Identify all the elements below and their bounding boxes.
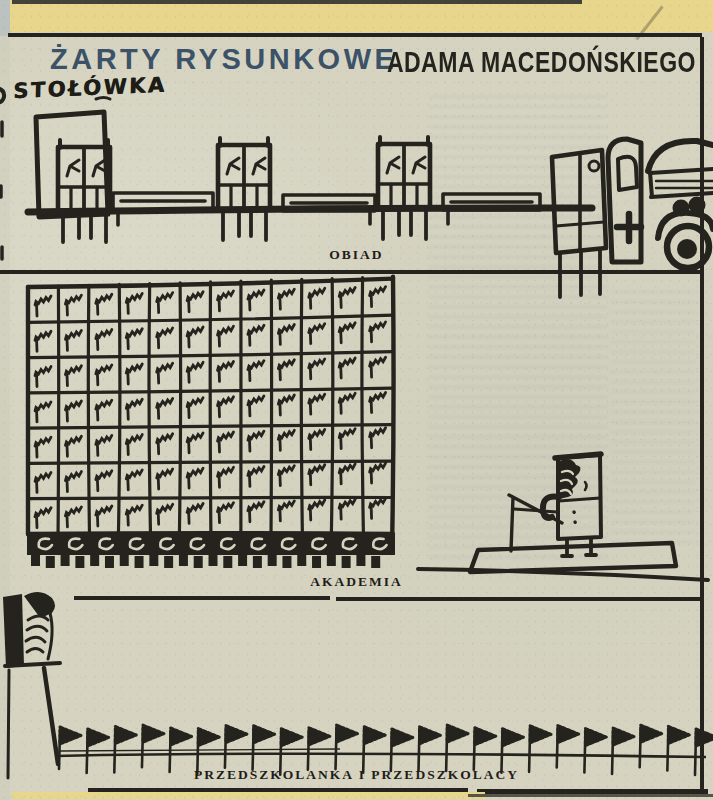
sleeping-face-glyph — [339, 287, 355, 307]
sleeping-face-glyph — [309, 288, 325, 308]
cartoon-akademia-drawing — [0, 0, 713, 800]
page-edge-top-line — [12, 0, 582, 4]
sleeping-face-glyph — [248, 431, 264, 451]
sleeping-face-glyph — [370, 287, 386, 307]
pennant-child-glyph — [337, 725, 358, 742]
sleeping-face-glyph — [278, 289, 294, 309]
sleeping-face-glyph — [126, 293, 142, 313]
sleeping-face-glyph — [248, 361, 264, 381]
page-title: ŻARTY RYSUNKOWE — [50, 43, 397, 76]
pennant-child-glyph — [585, 729, 606, 746]
sleeping-face-glyph — [218, 291, 234, 311]
sleeping-face-glyph — [218, 326, 234, 346]
sleeping-face-glyph — [339, 393, 355, 413]
sleeping-face-glyph — [35, 367, 51, 387]
sleeping-face-glyph — [278, 360, 294, 380]
sleeping-face-glyph — [218, 361, 234, 381]
pennant-child-glyph — [668, 726, 689, 743]
pennant-child-glyph — [475, 728, 496, 745]
sleeping-face-glyph — [278, 395, 294, 415]
sleeping-face-glyph — [126, 364, 142, 384]
paper-grain — [0, 0, 713, 800]
divider-rule-1 — [0, 270, 701, 274]
pennant-child-glyph — [696, 729, 713, 746]
sleeping-face-glyph — [339, 429, 355, 449]
right-frame-rule — [700, 37, 704, 790]
pennant-child-glyph — [392, 729, 413, 746]
sleeping-face-glyph — [278, 324, 294, 344]
sleeping-face-glyph — [96, 365, 112, 385]
sleeping-face-glyph — [339, 358, 355, 378]
scanned-newspaper-page: ŻARTY RYSUNKOWE ADAMA MACEDOŃSKIEGO STOŁ… — [0, 0, 713, 800]
sleeping-face-glyph — [157, 293, 173, 313]
ground-line — [56, 754, 706, 757]
cartoon-przedszkolanka-drawing — [0, 0, 713, 800]
sleeping-face-glyph — [187, 503, 203, 523]
sleeping-face-glyph — [187, 433, 203, 453]
teacher-banner — [3, 592, 60, 778]
pennant-child-glyph — [309, 728, 330, 745]
sleeping-face-glyph — [309, 500, 325, 520]
sleeping-face-glyph — [370, 428, 386, 448]
sleeping-face-glyph — [96, 294, 112, 314]
caption-przedszkolanka: PRZEDSZKOLANKA I PRZEDSZKOLACY — [0, 767, 713, 783]
ink-bleed-through — [428, 95, 608, 565]
sleeping-face-glyph — [370, 357, 386, 377]
sleeping-face-glyph — [187, 362, 203, 382]
sleeping-face-glyph — [187, 292, 203, 312]
sleeping-face-glyph — [126, 329, 142, 349]
sleeping-face-glyph — [35, 472, 51, 492]
pennant-child-glyph — [143, 725, 164, 742]
door-window — [618, 157, 637, 190]
sleeping-face-glyph — [157, 328, 173, 348]
sleeping-face-glyph — [96, 506, 112, 526]
pennant-child-glyph — [502, 729, 523, 746]
sleeping-face-glyph — [157, 469, 173, 489]
sleeping-face-glyph — [218, 503, 234, 523]
pennant-child-glyph — [115, 726, 136, 743]
sleeping-face-glyph — [65, 295, 81, 315]
sleeping-face-glyph — [126, 435, 142, 455]
sleeping-face-glyph — [339, 499, 355, 519]
sleeping-face-glyph — [278, 466, 294, 486]
sleeping-face-glyph — [370, 463, 386, 483]
speaker-head — [559, 459, 580, 499]
sleeping-face-glyph — [187, 398, 203, 418]
teacher-hair — [24, 592, 55, 617]
pennant-child-glyph — [419, 727, 440, 744]
sleeping-face-glyph — [218, 432, 234, 452]
sleeping-face-glyph — [96, 400, 112, 420]
sleeping-face-glyph — [126, 399, 142, 419]
sleeping-face-glyph — [278, 430, 294, 450]
sleeping-face-glyph — [370, 322, 386, 342]
speaker-rostrum — [418, 454, 708, 580]
sleeping-face-glyph — [309, 359, 325, 379]
pennant-child-glyph — [226, 726, 247, 743]
canteen-tables — [1, 112, 592, 259]
sleeping-face-glyph — [65, 401, 81, 421]
sleeping-face-glyph — [157, 363, 173, 383]
sleeping-face-glyph — [65, 507, 81, 527]
sleeping-face-glyph — [65, 330, 81, 350]
speaker-arm — [543, 497, 559, 519]
pennant-child-glyph — [613, 728, 634, 745]
sleeping-face-glyph — [248, 396, 264, 416]
sleeping-face-glyph — [248, 502, 264, 522]
sleeping-face-glyph — [35, 402, 51, 422]
pennant-child-glyph — [171, 728, 192, 745]
sleeping-face-glyph — [65, 366, 81, 386]
divider-rule-2b — [336, 597, 702, 601]
sleeping-face-glyph — [65, 472, 81, 492]
pennant-child-glyph — [281, 729, 302, 746]
page-edge-bottom-line — [468, 794, 713, 797]
sleeping-face-glyph — [248, 466, 264, 486]
audience-grid — [27, 277, 395, 568]
pennant-child-glyph — [88, 729, 109, 746]
sleeping-face-glyph — [309, 324, 325, 344]
sleeping-face-glyph — [248, 290, 264, 310]
sleeping-face-glyph — [157, 398, 173, 418]
sleeping-face-glyph — [35, 296, 51, 316]
caption-obiad: OBIAD — [0, 247, 713, 263]
sleeping-face-glyph — [278, 501, 294, 521]
sleeping-face-glyph — [157, 504, 173, 524]
sleeping-face-glyph — [370, 392, 386, 412]
pennant-child-glyph — [254, 726, 275, 743]
pennant-child-glyph — [641, 725, 662, 742]
sleeping-face-glyph — [218, 467, 234, 487]
sleeping-face-glyph — [157, 434, 173, 454]
sleeping-face-glyph — [339, 323, 355, 343]
sleeping-face-glyph — [309, 429, 325, 449]
handwritten-note: STOŁÓWKA — [13, 73, 167, 104]
sleeping-face-glyph — [187, 327, 203, 347]
author-byline: ADAMA MACEDOŃSKIEGO — [387, 45, 696, 79]
sleeping-face-glyph — [96, 435, 112, 455]
lectern — [509, 495, 562, 551]
sleeping-face-glyph — [65, 436, 81, 456]
divider-rule-2a — [74, 596, 330, 600]
sleeping-face-glyph — [248, 325, 264, 345]
sleeping-face-glyph — [126, 470, 142, 490]
sleeping-face-glyph — [96, 471, 112, 491]
sleeping-face-glyph — [370, 498, 386, 518]
sleeping-face-glyph — [96, 330, 112, 350]
sleeping-face-glyph — [309, 465, 325, 485]
cartoon-obiad-drawing — [0, 0, 713, 800]
sleeping-face-glyph — [339, 464, 355, 484]
pennant-child-glyph — [558, 726, 579, 743]
pennant-child-glyph — [530, 726, 551, 743]
sleeping-face-glyph — [126, 505, 142, 525]
ambulance-cross-icon — [617, 214, 641, 241]
ink-bleed-through — [610, 290, 695, 550]
pennant-child-glyph — [364, 727, 385, 744]
pennant-child-glyph — [198, 729, 219, 746]
pennant-child-glyph — [447, 725, 468, 742]
sleeping-face-glyph — [187, 468, 203, 488]
sleeping-face-glyph — [35, 331, 51, 351]
sleeping-face-glyph — [35, 437, 51, 457]
pennant-child-glyph — [60, 727, 81, 744]
header-rule — [8, 33, 702, 37]
sleeping-face-glyph — [309, 394, 325, 414]
sleeping-face-glyph — [35, 508, 51, 528]
page-edge-bottom — [12, 792, 485, 799]
page-edge-left — [0, 0, 10, 36]
sleeping-face-glyph — [218, 397, 234, 417]
page-edge-top — [0, 0, 713, 32]
bottom-rule-b — [477, 789, 708, 794]
caption-akademia: AKADEMIA — [0, 574, 713, 590]
